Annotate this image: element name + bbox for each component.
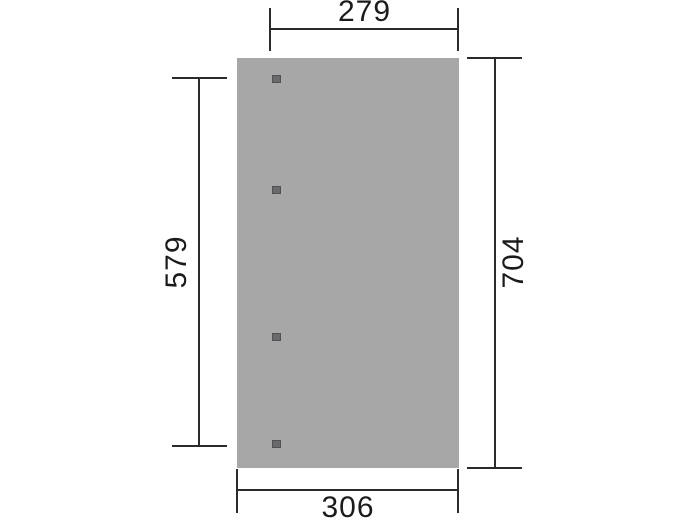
dimension-diagram: 279 306 579 704 — [0, 0, 700, 525]
dimension-right-line — [494, 58, 496, 468]
post-marker-2 — [272, 186, 281, 194]
dimension-right-tick-bottom — [467, 467, 522, 469]
post-marker-4 — [272, 440, 281, 448]
dimension-left-tick-bottom — [172, 445, 227, 447]
dimension-left-value: 579 — [162, 235, 192, 288]
dimension-right-value: 704 — [499, 235, 529, 288]
dimension-left-tick-top — [172, 77, 227, 79]
dimension-left-line — [198, 78, 200, 447]
post-marker-3 — [272, 333, 281, 341]
post-marker-1 — [272, 75, 281, 83]
dimension-top-line — [270, 28, 459, 30]
floor-area — [237, 58, 459, 468]
dimension-top-value: 279 — [270, 0, 459, 27]
dimension-bottom-value: 306 — [237, 493, 459, 523]
dimension-right-tick-top — [467, 57, 522, 59]
